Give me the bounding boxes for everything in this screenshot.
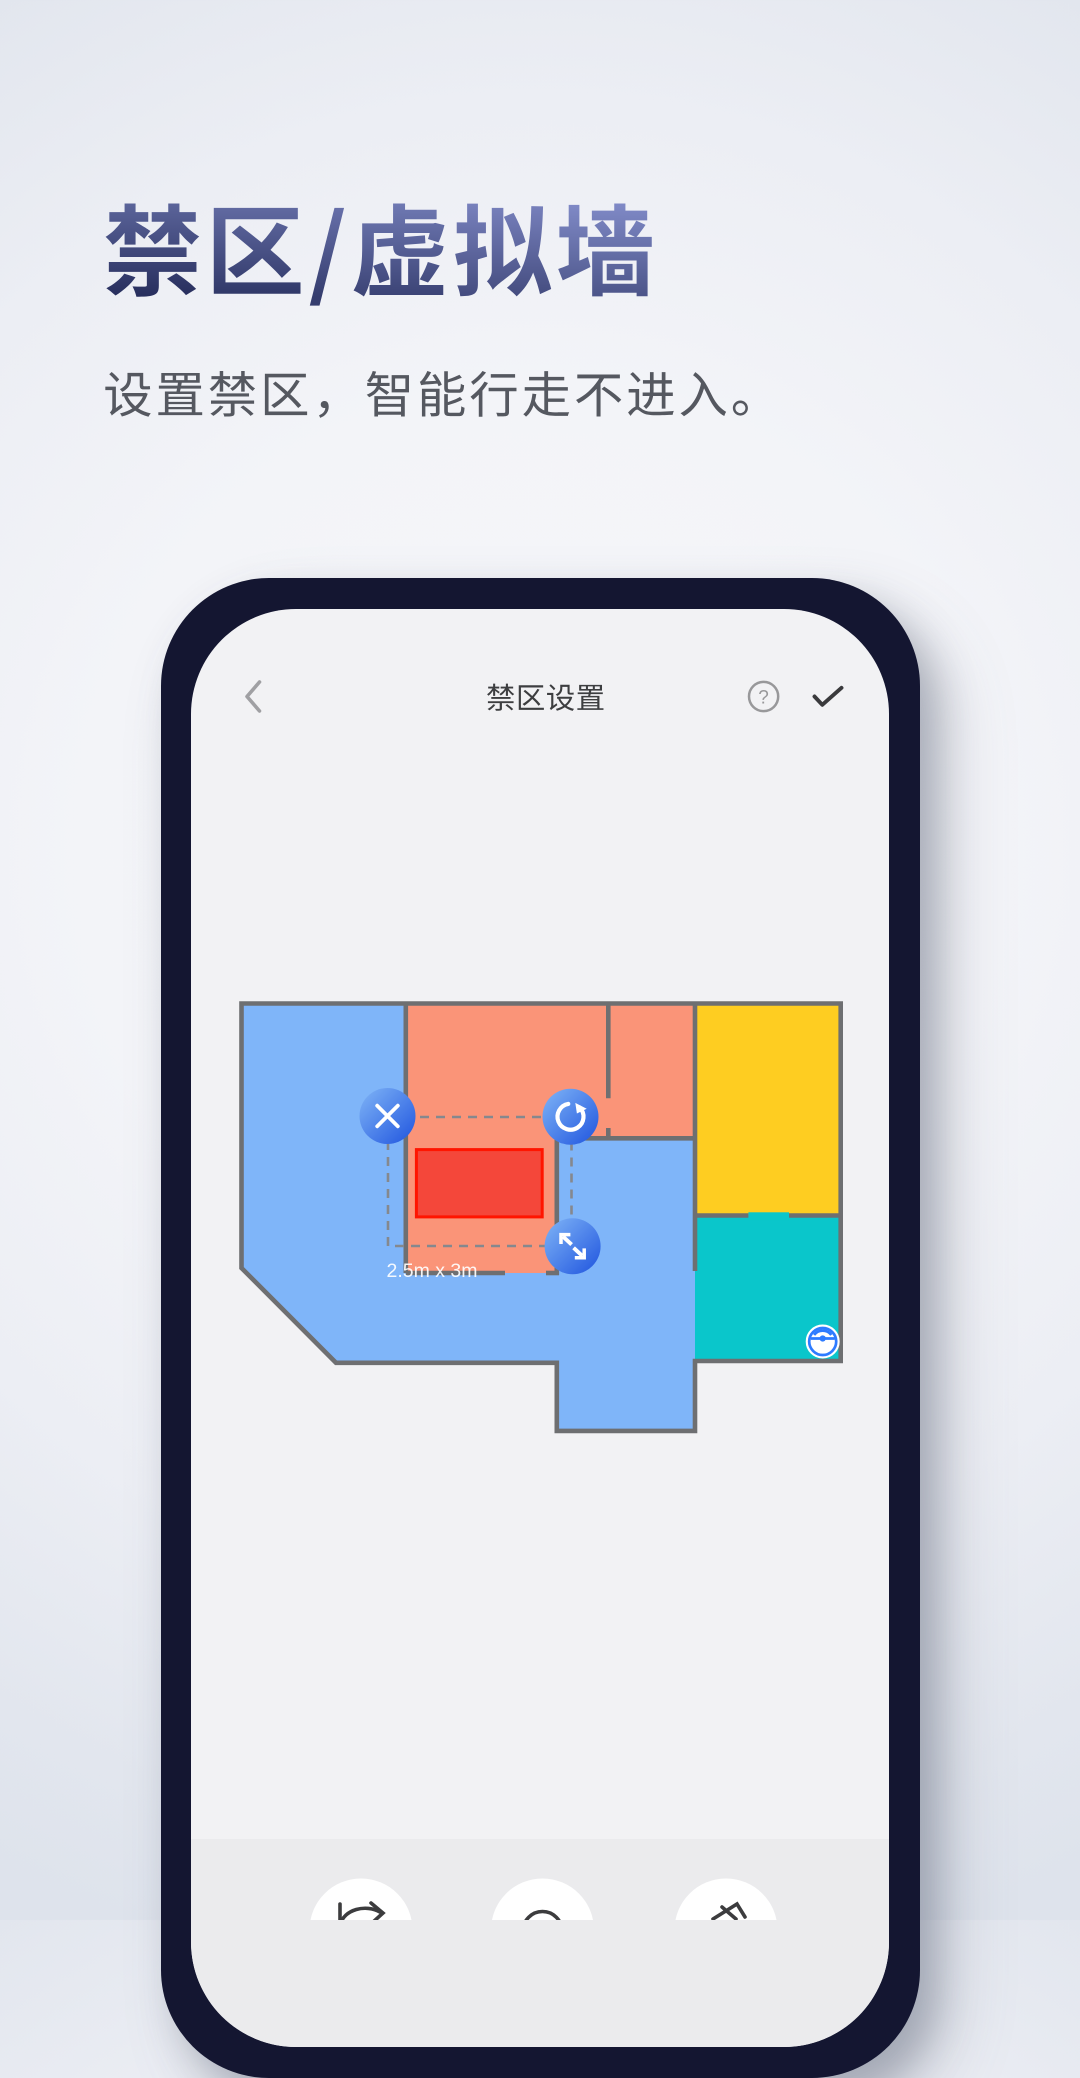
svg-text:2.5m x 3m: 2.5m x 3m	[387, 1260, 478, 1282]
svg-text:?: ?	[758, 688, 769, 709]
